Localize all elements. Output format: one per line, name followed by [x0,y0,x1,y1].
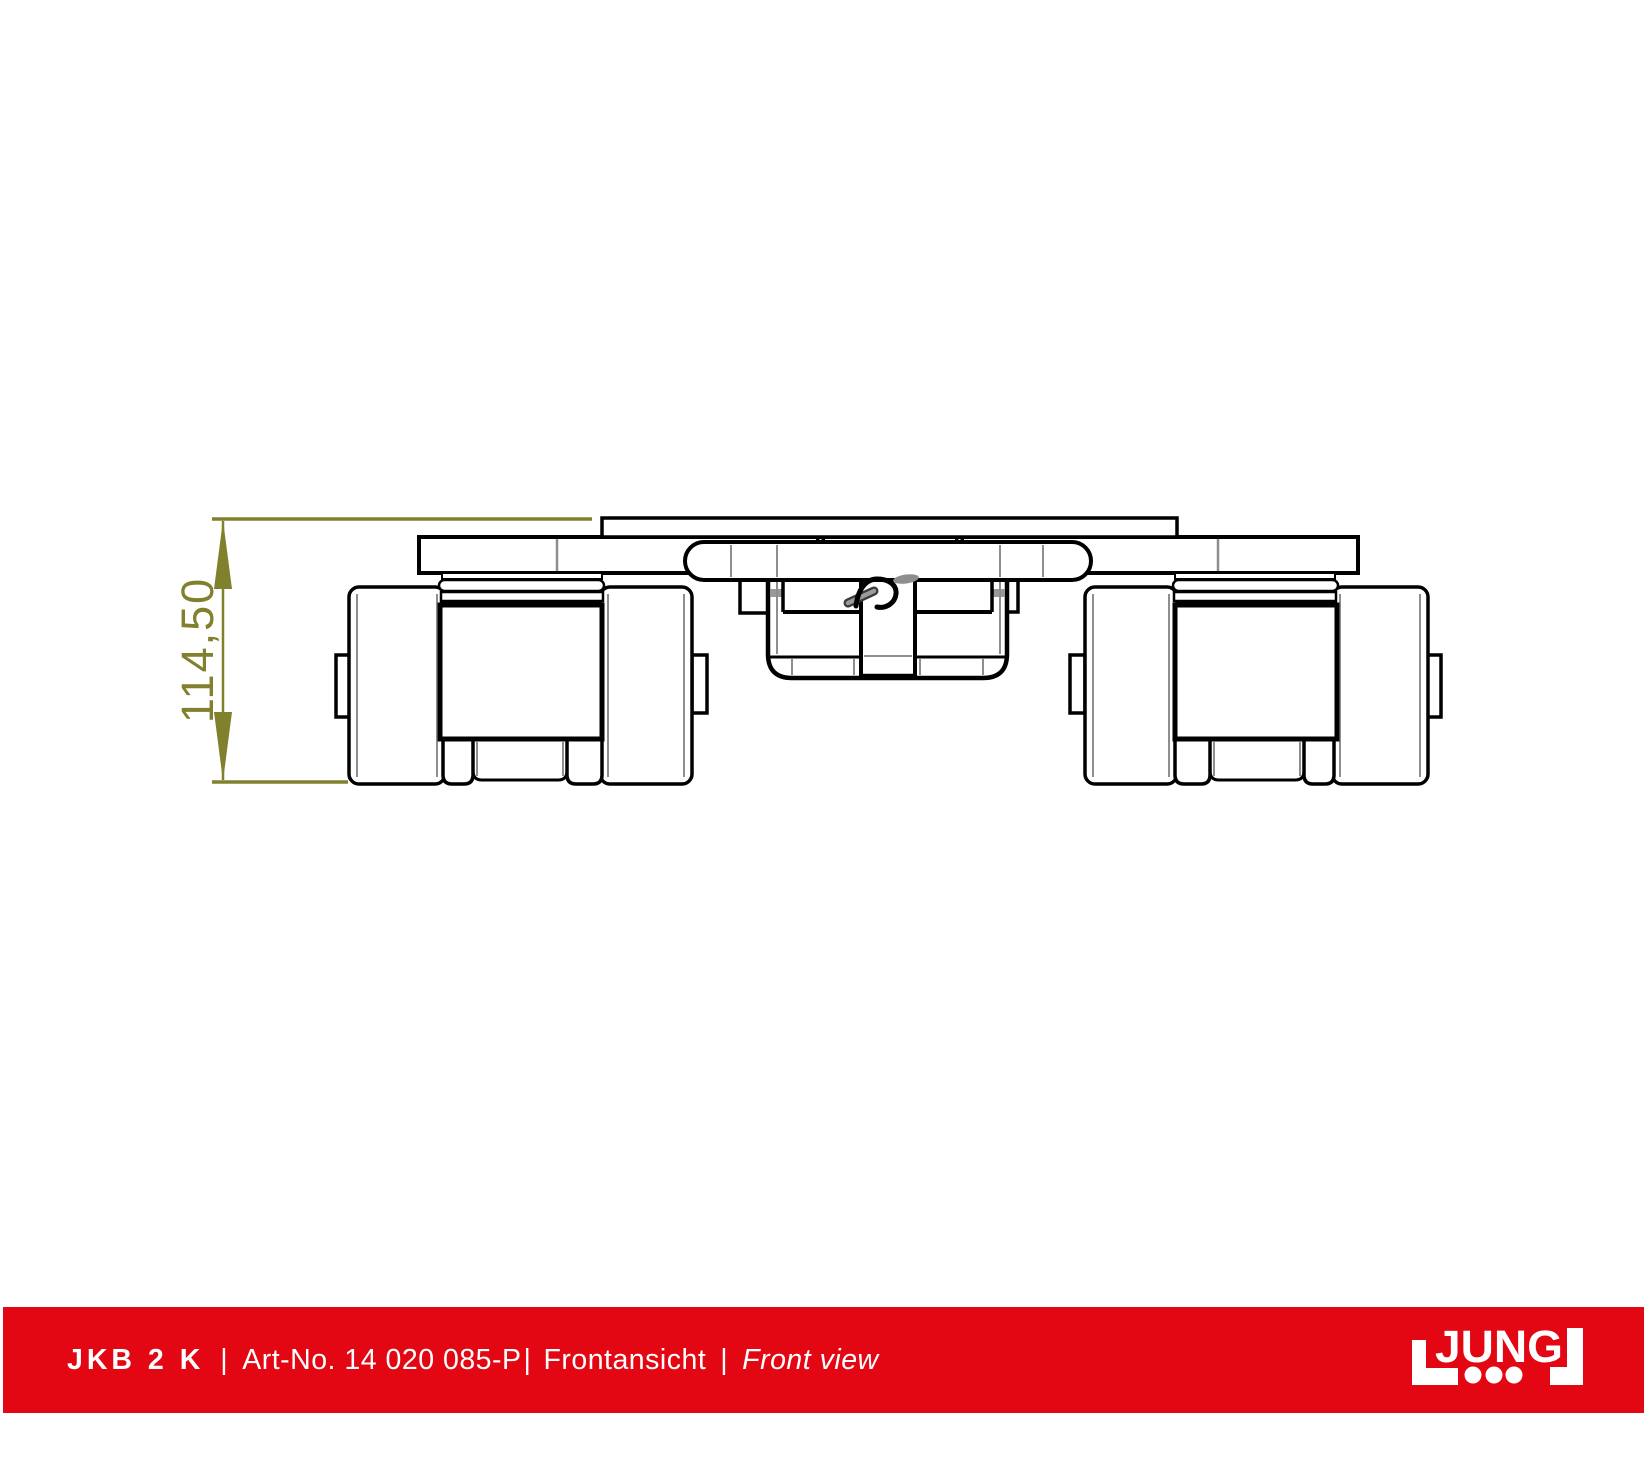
jung-logo: JUNG [1404,1315,1594,1395]
axle-tab-inner [692,655,707,713]
logo-dot [1506,1367,1523,1384]
front-view-drawing: 114,50 [0,0,1649,1464]
roller-unit-left [336,573,707,784]
separator-pipe: | [720,1344,728,1376]
datasheet-page: 114,50 JKB 2 K|Art-No. 14 020 085-P|Fron… [0,0,1649,1464]
wheel [440,605,602,739]
article-number: Art-No. 14 020 085-P [242,1344,521,1376]
top-plate [602,518,1177,537]
logo-wordmark: JUNG [1435,1321,1563,1372]
separator-pipe: | [524,1344,532,1376]
logo-dot [1486,1367,1503,1384]
logo-dot [1465,1367,1482,1384]
bottom-roller-right [567,739,602,784]
swivel-rings [439,573,604,606]
bottom-roller-left [443,739,473,784]
dimension-label: 114,50 [172,577,223,723]
side-plate-inner [600,587,692,784]
latch-step-left [740,578,768,613]
roller-unit-right [1070,573,1441,784]
view-label-de: Frontansicht [543,1344,706,1376]
footer-bar: JKB 2 K|Art-No. 14 020 085-P|Frontansich… [3,1307,1644,1413]
bottom-roller-center [473,739,567,780]
product-model: JKB 2 K [67,1344,204,1376]
separator-pipe: | [220,1344,228,1376]
footer-caption: JKB 2 K|Art-No. 14 020 085-P|Frontansich… [67,1344,879,1377]
side-plate-outer [349,587,445,784]
view-label-en: Front view [742,1344,878,1376]
center-coupling [685,538,1091,678]
swivel-plate [685,542,1091,580]
